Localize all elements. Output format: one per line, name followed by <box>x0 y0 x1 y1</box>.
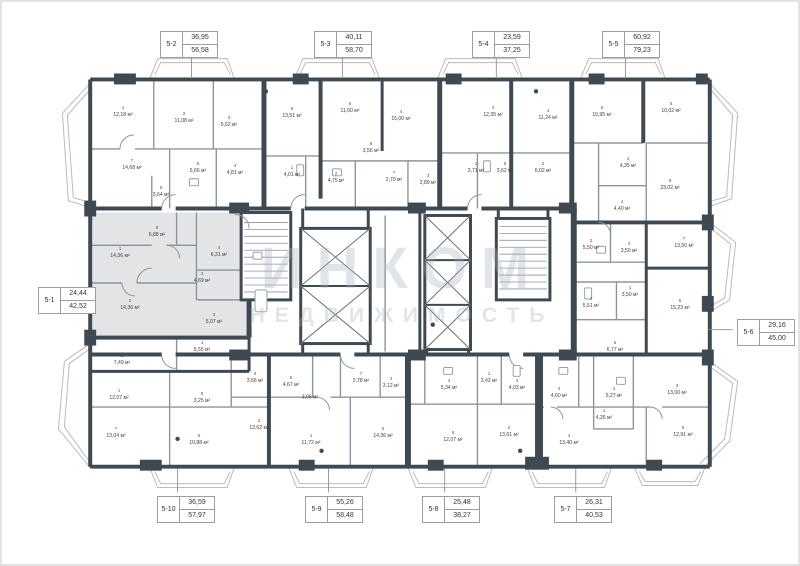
unit-id: 5-3 <box>315 32 337 57</box>
unit-total-area: 56,58 <box>183 45 217 57</box>
unit-id: 5-5 <box>603 32 625 57</box>
unit-total-area: 58,48 <box>328 510 362 522</box>
selected-apartment-5-1[interactable] <box>90 214 250 340</box>
unit-living-area: 29,16 <box>760 320 794 333</box>
unit-areas: 36,9556,58 <box>183 32 217 57</box>
unit-areas: 40,1158,70 <box>337 32 371 57</box>
unit-total-area: 40,53 <box>577 510 611 522</box>
unit-total-area: 45,00 <box>760 333 794 345</box>
unit-callout-5-8[interactable]: 5-825,4838,27 <box>422 496 480 523</box>
unit-areas: 60,9279,23 <box>625 32 659 57</box>
unit-total-area: 37,25 <box>495 45 529 57</box>
unit-areas: 36,5957,97 <box>180 497 214 522</box>
floorplan-canvas: ИНКОМ НЕДВИЖИМОСТЬ 112,18 м²211,08 м²35,… <box>0 0 800 566</box>
unit-total-area: 57,97 <box>180 510 214 522</box>
unit-id: 5-6 <box>738 320 760 345</box>
unit-living-area: 26,31 <box>577 497 611 510</box>
unit-callout-5-2[interactable]: 5-236,9556,58 <box>160 31 218 58</box>
unit-living-area: 55,26 <box>328 497 362 510</box>
unit-callout-5-1[interactable]: 5-124,4442,52 <box>38 287 96 314</box>
unit-callout-5-10[interactable]: 5-1036,5957,97 <box>157 496 215 523</box>
unit-id: 5-10 <box>158 497 180 522</box>
unit-id: 5-8 <box>423 497 445 522</box>
unit-callout-5-9[interactable]: 5-955,2658,48 <box>305 496 363 523</box>
unit-areas: 26,3140,53 <box>577 497 611 522</box>
unit-id: 5-2 <box>161 32 183 57</box>
unit-living-area: 60,92 <box>625 32 659 45</box>
unit-areas: 24,4442,52 <box>61 288 95 313</box>
unit-living-area: 36,95 <box>183 32 217 45</box>
unit-areas: 29,1645,00 <box>760 320 794 345</box>
staircase-right <box>496 218 550 299</box>
unit-callout-5-7[interactable]: 5-726,3140,53 <box>554 496 612 523</box>
unit-living-area: 40,11 <box>337 32 371 45</box>
unit-living-area: 24,44 <box>61 288 95 301</box>
unit-id: 5-4 <box>473 32 495 57</box>
unit-callout-5-4[interactable]: 5-423,5937,25 <box>472 31 530 58</box>
unit-callout-5-6[interactable]: 5-629,1645,00 <box>737 319 795 346</box>
unit-total-area: 58,70 <box>337 45 371 57</box>
unit-id: 5-9 <box>306 497 328 522</box>
unit-living-area: 36,59 <box>180 497 214 510</box>
unit-callout-5-5[interactable]: 5-560,9279,23 <box>602 31 660 58</box>
unit-areas: 23,5937,25 <box>495 32 529 57</box>
unit-id: 5-7 <box>555 497 577 522</box>
unit-living-area: 23,59 <box>495 32 529 45</box>
unit-living-area: 25,48 <box>445 497 479 510</box>
unit-total-area: 79,23 <box>625 45 659 57</box>
unit-areas: 55,2658,48 <box>328 497 362 522</box>
unit-id: 5-1 <box>39 288 61 313</box>
unit-areas: 25,4838,27 <box>445 497 479 522</box>
unit-callout-5-3[interactable]: 5-340,1158,70 <box>314 31 372 58</box>
unit-total-area: 42,52 <box>61 301 95 313</box>
unit-total-area: 38,27 <box>445 510 479 522</box>
